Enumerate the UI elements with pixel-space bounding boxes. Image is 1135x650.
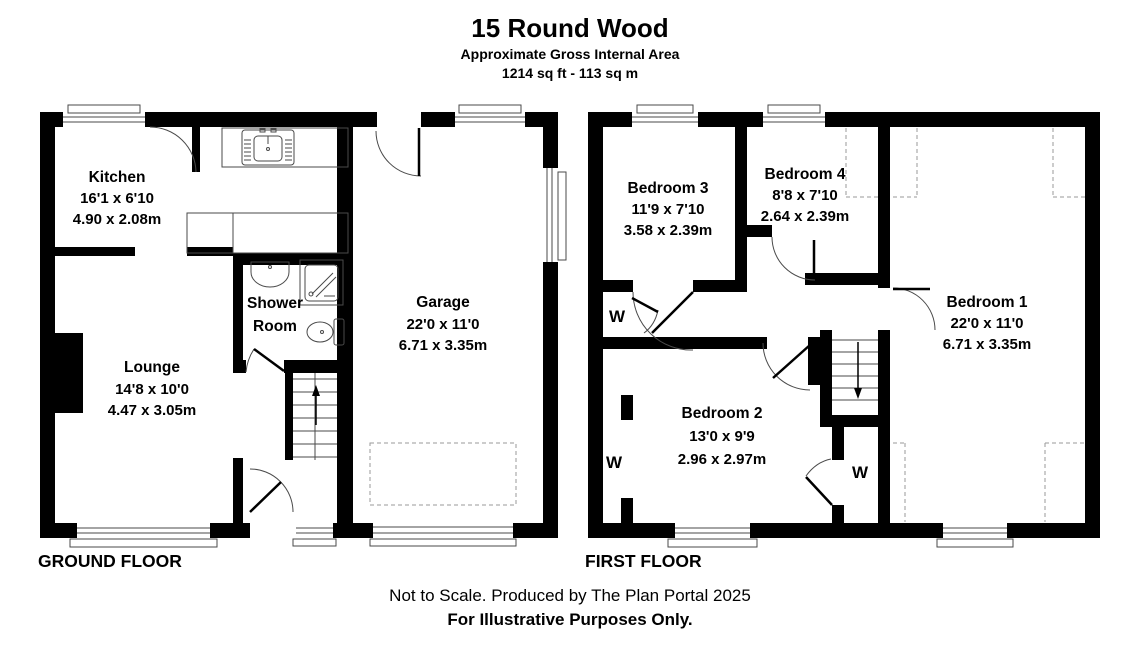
- stair-arrow-head: [312, 385, 320, 396]
- bedroom3-label: Bedroom 3: [628, 180, 709, 197]
- ground-floor-stairs: [293, 373, 337, 460]
- bedroom4-label: Bedroom 4: [765, 166, 846, 183]
- shower-symbol: [312, 273, 336, 297]
- bedroom1-dims-imperial: 22'0 x 11'0: [950, 315, 1023, 332]
- bedroom2-dims-metric: 2.96 x 2.97m: [678, 451, 766, 468]
- sink-drain: [267, 148, 270, 151]
- shower-tray: [300, 260, 343, 305]
- footer-illustrative: For Illustrative Purposes Only.: [447, 610, 692, 629]
- ground-floor-labels: Kitchen 16'1 x 6'10 4.90 x 2.08m Shower …: [38, 169, 487, 571]
- bedroom3-dims-metric: 3.58 x 2.39m: [624, 222, 712, 239]
- first-floor-stairs: [832, 340, 878, 400]
- bedroom1-dims-metric: 6.71 x 3.35m: [943, 336, 1031, 353]
- wardrobe-label-bedroom2: W: [606, 453, 623, 472]
- kitchen-sink: [242, 129, 294, 165]
- kitchen-dims-imperial: 16'1 x 6'10: [80, 190, 154, 207]
- page-title: 15 Round Wood: [471, 13, 668, 43]
- header-subtitle: Approximate Gross Internal Area: [461, 46, 680, 62]
- lounge-label: Lounge: [124, 359, 180, 376]
- garage-dashed-area: [370, 443, 516, 505]
- footer: Not to Scale. Produced by The Plan Porta…: [389, 586, 751, 629]
- bedroom4-dims-metric: 2.64 x 2.39m: [761, 208, 849, 225]
- shower-room-label-2: Room: [253, 318, 297, 335]
- sink-drainers: [244, 129, 292, 160]
- first-floor-plan: Bedroom 3 11'9 x 7'10 3.58 x 2.39m Bedro…: [585, 105, 1100, 571]
- stair-treads: [293, 373, 337, 460]
- toilet-flush: [321, 331, 324, 334]
- bedroom1-label: Bedroom 1: [947, 294, 1028, 311]
- kitchen-label: Kitchen: [89, 169, 146, 186]
- header: 15 Round Wood Approximate Gross Internal…: [461, 13, 680, 81]
- garage-dims-metric: 6.71 x 3.35m: [399, 337, 487, 354]
- basin-tap: [269, 266, 272, 269]
- bedroom4-dims-imperial: 8'8 x 7'10: [772, 187, 838, 204]
- ground-floor-title: GROUND FLOOR: [38, 551, 182, 571]
- floorplan-page: 15 Round Wood Approximate Gross Internal…: [0, 0, 1135, 650]
- first-floor-title: FIRST FLOOR: [585, 551, 702, 571]
- bedroom2-label: Bedroom 2: [682, 405, 763, 422]
- first-floor-stair-treads: [832, 340, 878, 400]
- wardrobe-label-landing: W: [609, 307, 626, 326]
- garage-dims-imperial: 22'0 x 11'0: [406, 316, 479, 333]
- shower-room-label-1: Shower: [247, 295, 303, 312]
- bedroom3-dims-imperial: 11'9 x 7'10: [631, 201, 704, 218]
- floorplan-svg: 15 Round Wood Approximate Gross Internal…: [0, 0, 1135, 650]
- bedroom2-dims-imperial: 13'0 x 9'9: [689, 428, 755, 445]
- lounge-dims-metric: 4.47 x 3.05m: [108, 402, 196, 419]
- garage-label: Garage: [416, 294, 470, 311]
- kitchen-dims-metric: 4.90 x 2.08m: [73, 211, 161, 228]
- first-floor-stair-arrow-head: [854, 388, 862, 399]
- kitchen-counter: [187, 128, 348, 253]
- footer-disclaimer: Not to Scale. Produced by The Plan Porta…: [389, 586, 751, 605]
- ground-floor-plan: Kitchen 16'1 x 6'10 4.90 x 2.08m Shower …: [38, 105, 566, 571]
- header-area: 1214 sq ft - 113 sq m: [502, 65, 638, 81]
- wardrobe-label-understairs: W: [852, 463, 869, 482]
- lounge-dims-imperial: 14'8 x 10'0: [115, 381, 189, 398]
